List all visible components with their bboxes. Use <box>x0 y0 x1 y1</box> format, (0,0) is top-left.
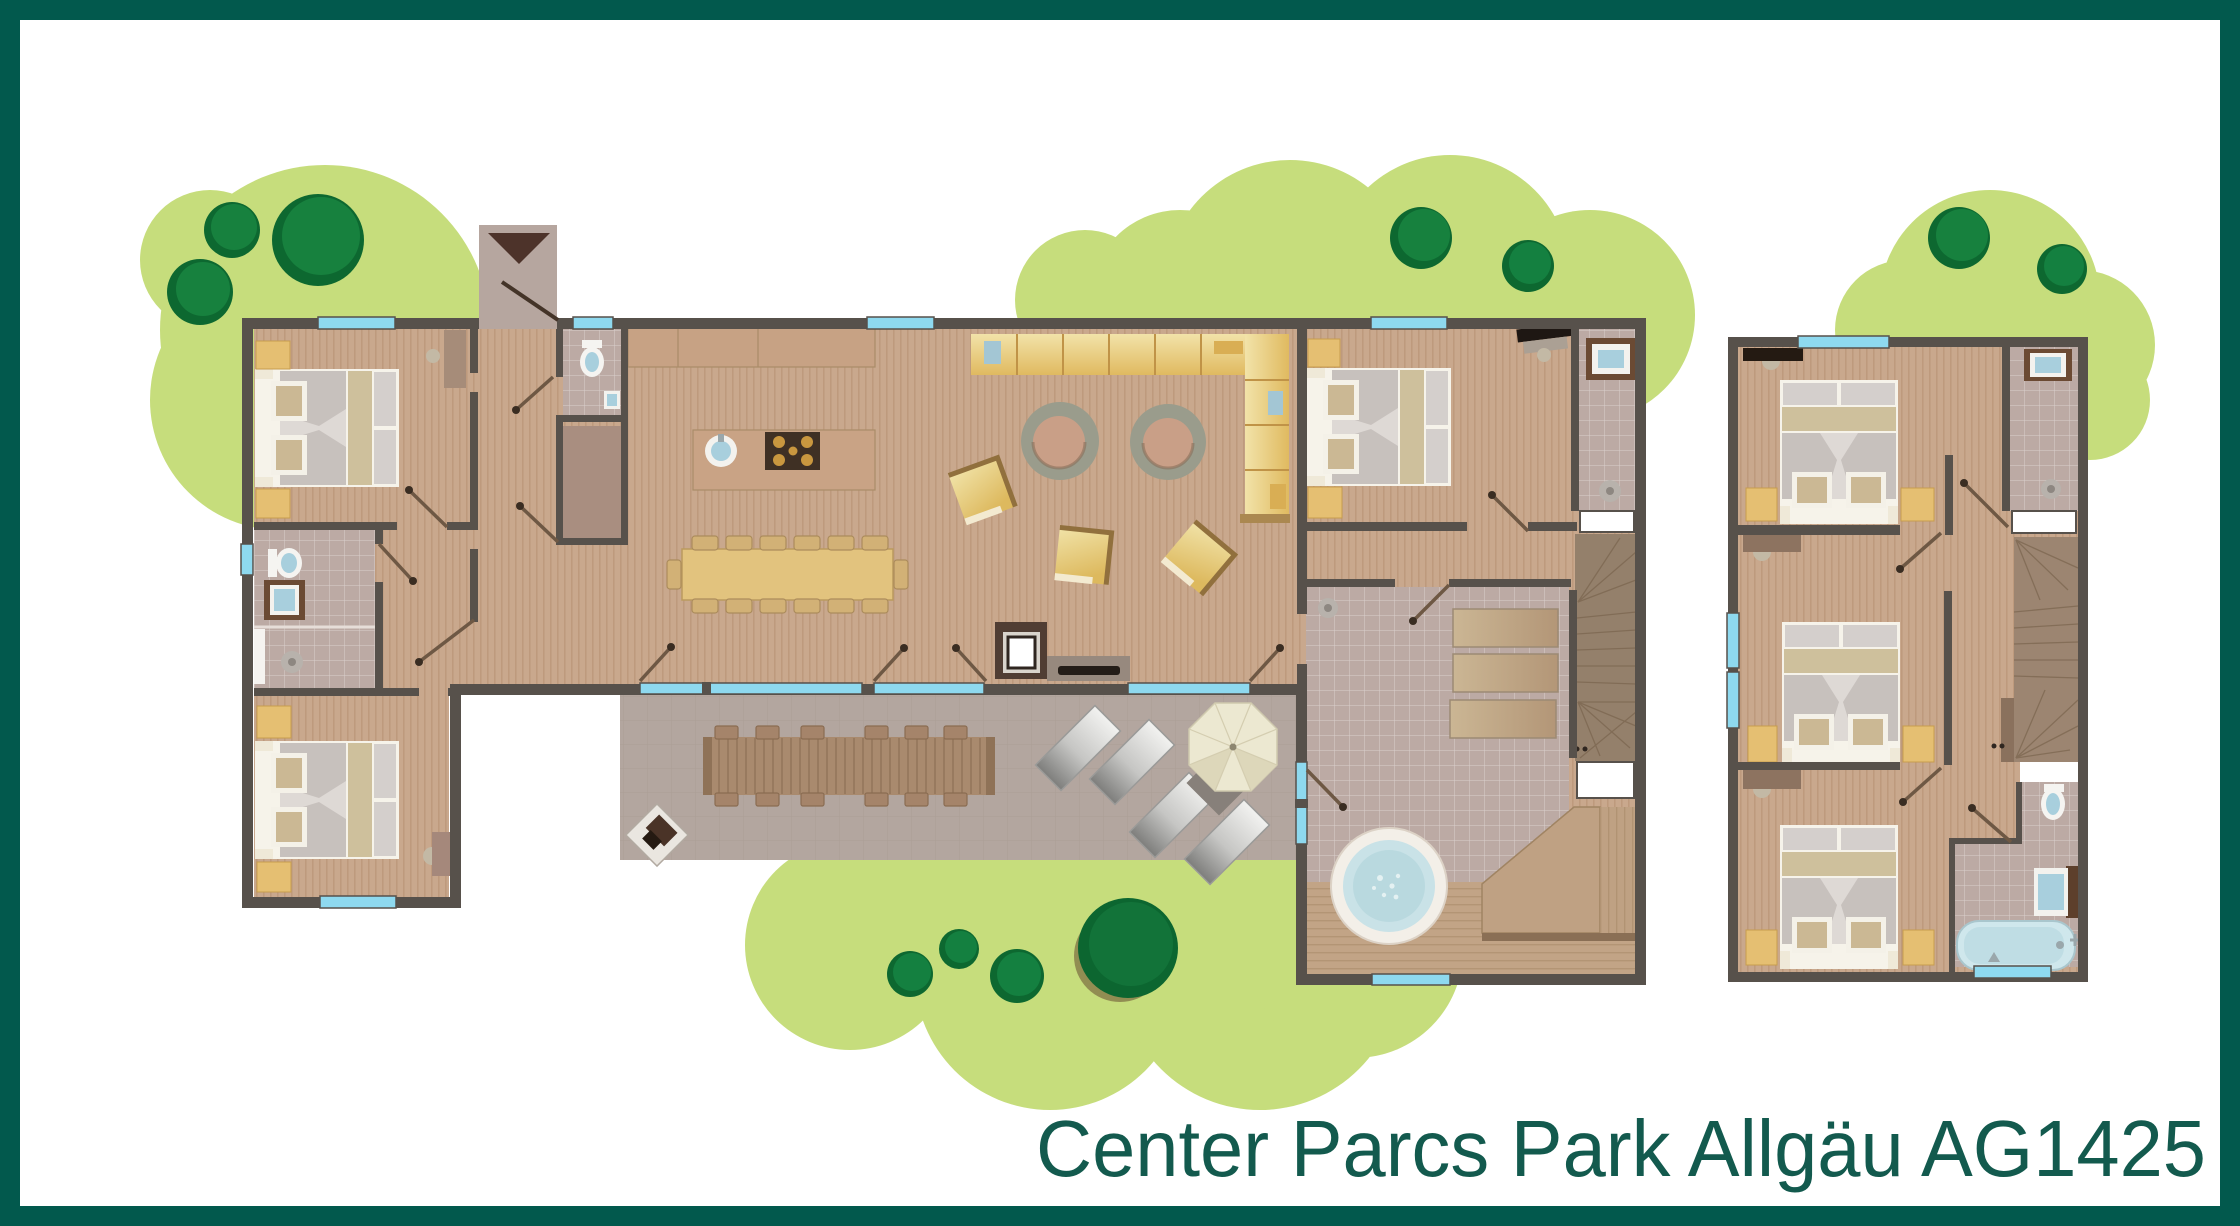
svg-text:Center Parcs Park Allgäu AG142: Center Parcs Park Allgäu AG1425 <box>1036 1104 2206 1193</box>
